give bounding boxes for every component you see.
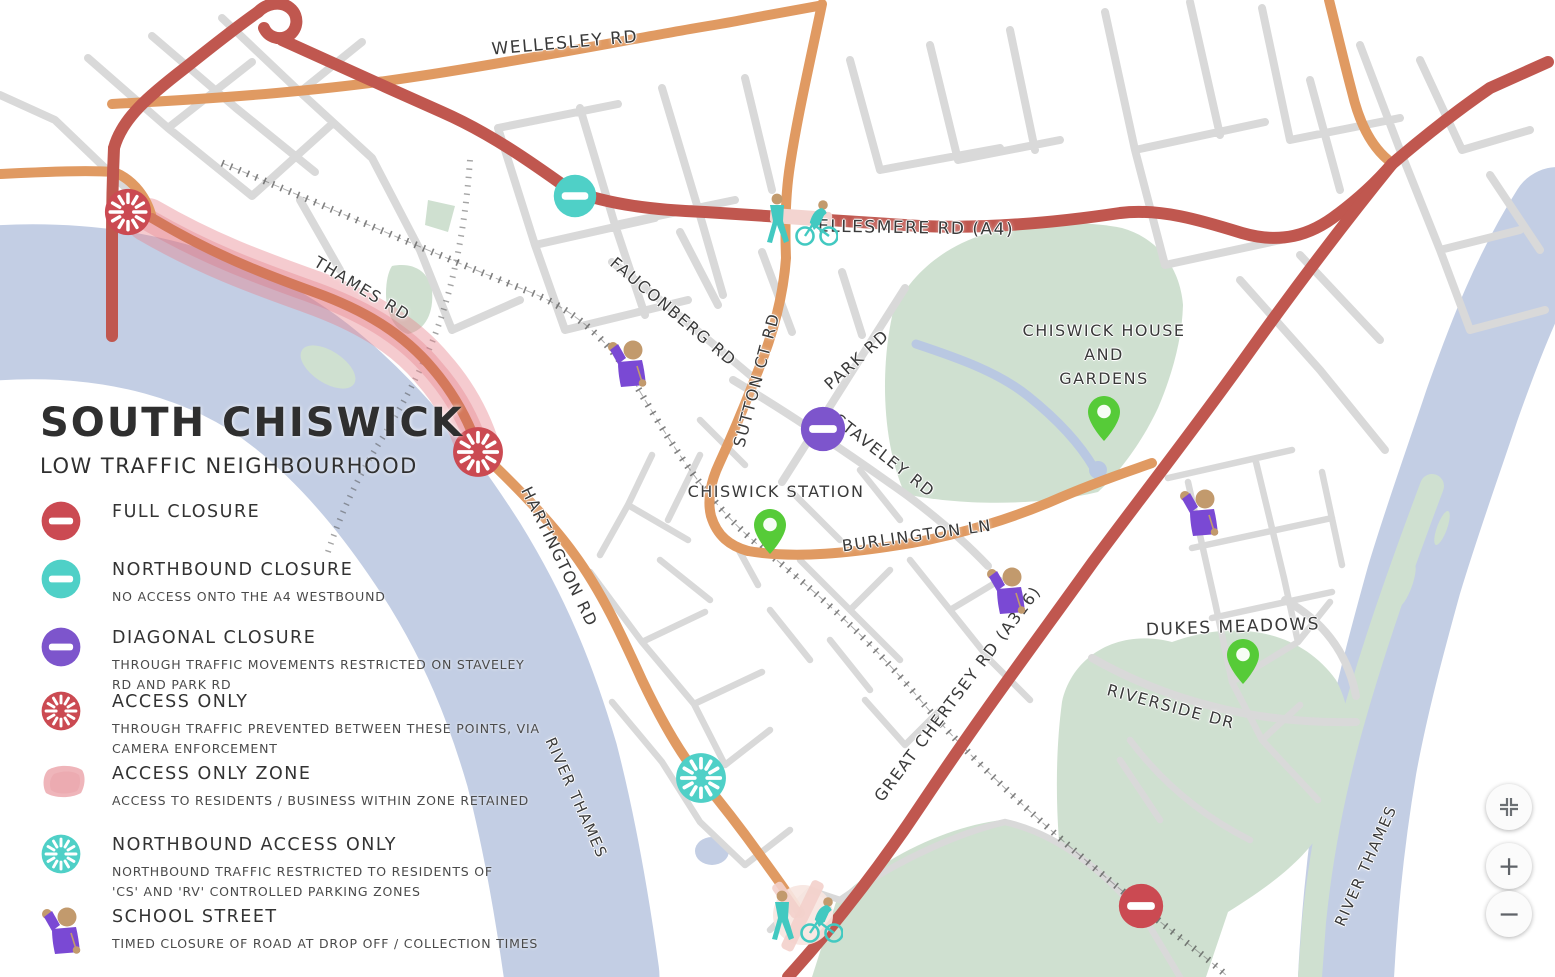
legend-item-label: FULL CLOSURE — [112, 502, 260, 522]
page-title: SOUTH CHISWICK — [40, 400, 464, 446]
legend-item-label: DIAGONAL CLOSURE — [112, 628, 540, 648]
legend-item-label: NORTHBOUND CLOSURE — [112, 560, 386, 580]
access-only-zone-icon — [40, 762, 96, 800]
diagonal-closure-icon — [40, 626, 96, 668]
legend-item-sublabel: TIMED CLOSURE OF ROAD AT DROP OFF / COLL… — [112, 934, 538, 954]
fit-bounds-icon — [1498, 796, 1520, 818]
legend-item-northbound-closure: NORTHBOUND CLOSURE NO ACCESS ONTO THE A4… — [40, 558, 540, 607]
legend-item-sublabel: THROUGH TRAFFIC PREVENTED BETWEEN THESE … — [112, 719, 540, 759]
legend-item-label: ACCESS ONLY — [112, 692, 540, 712]
legend-item-northbound-access-only: NORTHBOUND ACCESS ONLY NORTHBOUND TRAFFI… — [40, 833, 540, 902]
map-artwork — [0, 0, 1555, 977]
zoom-out-button[interactable]: − — [1486, 891, 1532, 937]
northbound-closure-icon — [40, 558, 96, 600]
map-canvas[interactable]: WELLESLEY RDELLESMERE RD (A4)THAMES RDFA… — [0, 0, 1555, 977]
legend-item-label: ACCESS ONLY ZONE — [112, 764, 529, 784]
legend-item-sublabel: NO ACCESS ONTO THE A4 WESTBOUND — [112, 587, 386, 607]
page-subtitle: LOW TRAFFIC NEIGHBOURHOOD — [40, 454, 464, 478]
legend-item-sublabel: NORTHBOUND TRAFFIC RESTRICTED TO RESIDEN… — [112, 862, 493, 902]
legend-item-sublabel: ACCESS TO RESIDENTS / BUSINESS WITHIN ZO… — [112, 791, 529, 811]
legend-item-full-closure: FULL CLOSURE — [40, 500, 540, 542]
legend-item-access-only: ACCESS ONLY THROUGH TRAFFIC PREVENTED BE… — [40, 690, 540, 759]
fit-bounds-button[interactable] — [1486, 784, 1532, 830]
full-closure-icon — [40, 500, 96, 542]
zoom-in-button[interactable]: + — [1486, 843, 1532, 889]
access-only-icon — [40, 690, 96, 732]
northbound-access-only-icon — [40, 833, 96, 875]
legend: SOUTH CHISWICK LOW TRAFFIC NEIGHBOURHOOD — [40, 400, 464, 478]
zoom-in-icon: + — [1498, 851, 1521, 882]
legend-item-school-street: SCHOOL STREET TIMED CLOSURE OF ROAD AT D… — [40, 905, 540, 955]
legend-item-label: SCHOOL STREET — [112, 907, 538, 927]
zoom-out-icon: − — [1498, 899, 1521, 930]
school-street-icon — [40, 905, 96, 955]
legend-item-label: NORTHBOUND ACCESS ONLY — [112, 835, 493, 855]
legend-item-sublabel: THROUGH TRAFFIC MOVEMENTS RESTRICTED ON … — [112, 655, 540, 695]
legend-item-access-only-zone: ACCESS ONLY ZONE ACCESS TO RESIDENTS / B… — [40, 762, 540, 811]
legend-item-diagonal-closure: DIAGONAL CLOSURE THROUGH TRAFFIC MOVEMEN… — [40, 626, 540, 695]
